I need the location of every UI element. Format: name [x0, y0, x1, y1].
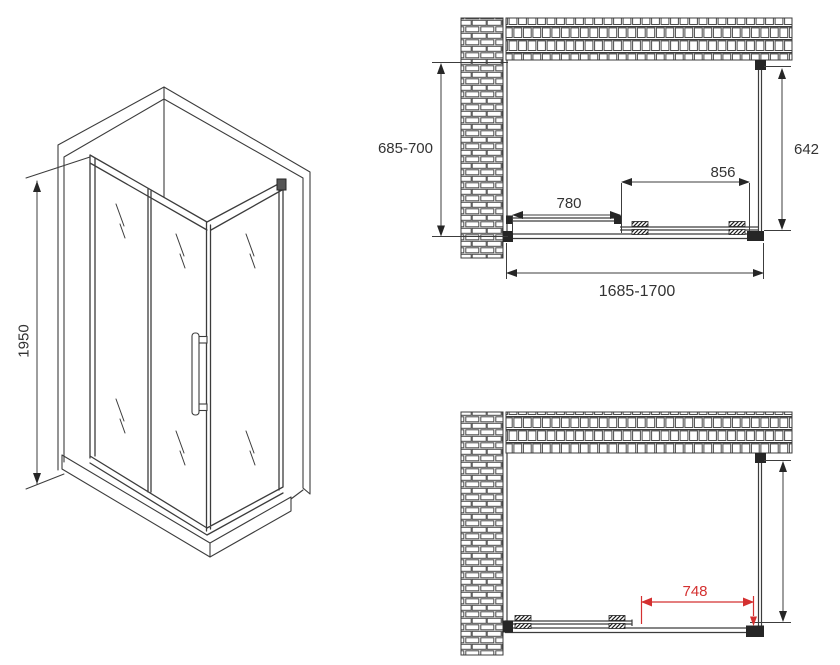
wall-bracket	[755, 453, 766, 463]
brick-wall-left	[461, 18, 503, 258]
background	[0, 0, 840, 665]
opening-width-dimension-label: 748	[682, 583, 707, 600]
wall-bracket	[503, 621, 513, 633]
side-panel-dimension-label: 642	[794, 141, 819, 158]
door-width-dimension-label: 856	[710, 164, 735, 181]
corner-bracket	[747, 231, 764, 241]
brick-wall-top	[506, 412, 792, 453]
technical-drawing-canvas: 1950	[0, 0, 840, 665]
brick-wall-top	[506, 18, 792, 60]
wall-bracket	[755, 60, 766, 70]
wall-depth-dimension-label: 685-700	[378, 140, 433, 157]
fixed-panel-dimension-label: 780	[556, 195, 581, 212]
brick-wall-left	[461, 412, 503, 655]
wall-profile-cap	[277, 179, 286, 190]
height-dimension-label: 1950	[16, 324, 33, 357]
corner-bracket	[746, 626, 764, 638]
total-width-dimension-label: 1685-1700	[599, 283, 676, 300]
fixed-panel-cap	[506, 216, 513, 225]
